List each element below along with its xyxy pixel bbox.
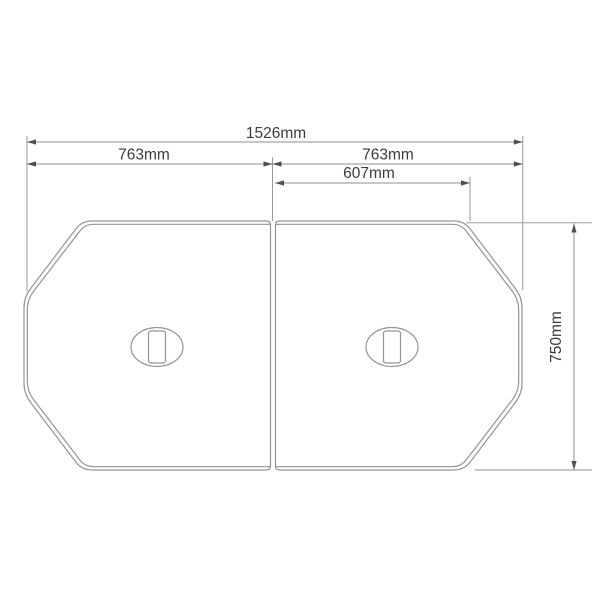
left-panel-handle-grip (149, 331, 166, 363)
arrowhead-left-panel-right (264, 161, 273, 166)
arrowhead-right-panel-right (514, 161, 523, 166)
left-panel-outline (24, 221, 271, 470)
label-right-panel-width: 763mm (362, 147, 414, 164)
arrowhead-total-left (27, 139, 36, 144)
bathtub-lid-dimension-drawing: 1526mm 763mm 763mm 607mm 750mm (0, 0, 600, 600)
label-total-width: 1526mm (246, 125, 306, 142)
extension-lines (27, 136, 592, 470)
label-inner-width: 607mm (343, 165, 395, 182)
right-panel-rim-inner-line (276, 224, 519, 466)
label-depth: 750mm (548, 311, 565, 363)
dimension-lines (27, 139, 577, 470)
arrowhead-left-panel-left (27, 161, 36, 166)
arrowhead-inner-left (275, 180, 284, 185)
lid-panels (24, 221, 522, 470)
dimension-labels: 1526mm 763mm 763mm 607mm 750mm (118, 125, 565, 363)
arrowhead-depth-bottom (571, 461, 576, 470)
right-panel-handle-ring (366, 328, 418, 367)
right-panel-outline (276, 221, 523, 470)
label-left-panel-width: 763mm (118, 147, 170, 164)
drawing-canvas: 1526mm 763mm 763mm 607mm 750mm (0, 0, 600, 600)
right-panel-handle-grip (384, 331, 401, 363)
left-panel-handle-ring (131, 328, 183, 367)
arrowhead-depth-top (571, 224, 576, 233)
arrowhead-total-right (514, 139, 523, 144)
arrowhead-right-panel-left (273, 161, 282, 166)
arrowhead-inner-right (461, 180, 470, 185)
